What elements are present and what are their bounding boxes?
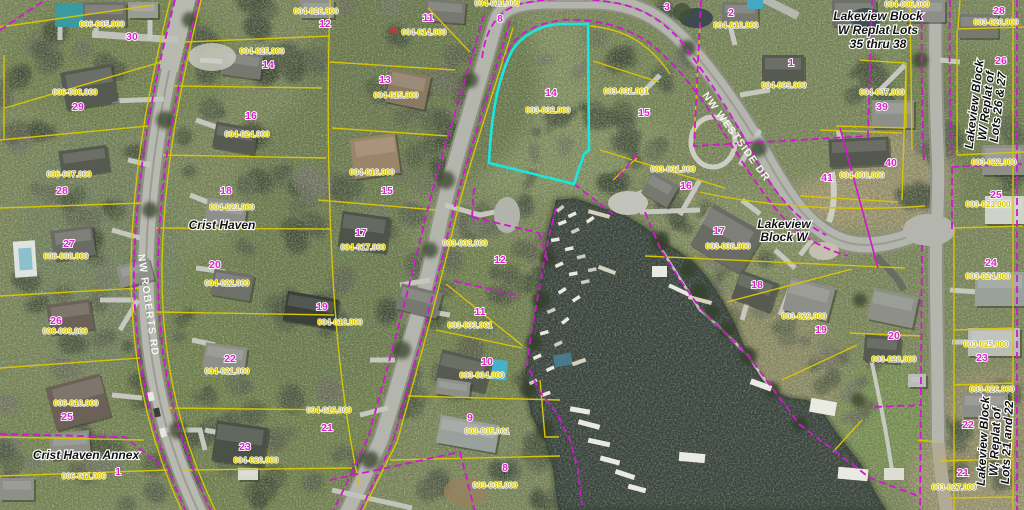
svg-text:003-024.000: 003-024.000 [966,272,1011,281]
svg-text:004-020.000: 004-020.000 [234,456,279,465]
svg-text:003-022.000: 003-022.000 [972,158,1017,167]
svg-text:30: 30 [126,31,138,43]
svg-text:13: 13 [379,74,391,86]
svg-text:41: 41 [821,172,833,184]
svg-text:Block W: Block W [760,230,809,244]
svg-text:12: 12 [319,18,331,30]
svg-text:004-010.000: 004-010.000 [714,21,759,30]
svg-text:24: 24 [985,257,997,269]
svg-text:22: 22 [224,353,236,365]
svg-text:19: 19 [815,324,827,336]
svg-text:006-010.000: 006-010.000 [54,399,99,408]
svg-text:28: 28 [56,185,68,197]
svg-text:16: 16 [245,110,257,122]
svg-text:2: 2 [728,7,734,19]
svg-text:18: 18 [220,185,232,197]
svg-text:004-014.000: 004-014.000 [402,28,447,37]
svg-text:Crist Haven Annex: Crist Haven Annex [33,448,141,462]
svg-text:15: 15 [638,107,650,119]
svg-text:26: 26 [50,315,62,327]
svg-text:21: 21 [321,422,333,434]
svg-text:003-033.000: 003-033.000 [443,239,488,248]
svg-text:10: 10 [481,356,493,368]
svg-text:26: 26 [995,55,1007,67]
svg-text:23: 23 [239,441,251,453]
svg-text:23: 23 [976,352,988,364]
svg-text:3: 3 [664,1,670,13]
svg-text:12: 12 [494,254,506,266]
svg-text:Crist Haven: Crist Haven [189,218,256,232]
svg-text:18: 18 [751,279,763,291]
svg-text:006-006.000: 006-006.000 [53,88,98,97]
svg-text:39: 39 [876,101,888,113]
svg-text:1: 1 [115,466,121,478]
svg-text:1: 1 [788,57,794,69]
svg-text:28: 28 [993,5,1005,17]
svg-text:40: 40 [885,157,897,169]
svg-text:004-026.000: 004-026.000 [294,7,339,16]
svg-text:004-007.000: 004-007.000 [860,88,905,97]
svg-text:11: 11 [422,12,433,24]
svg-text:Lakeview: Lakeview [757,217,811,231]
svg-text:21: 21 [957,467,969,479]
svg-text:35 thru 38: 35 thru 38 [850,37,907,51]
svg-text:004-017.000: 004-017.000 [341,243,386,252]
svg-text:004-025.000: 004-025.000 [240,47,285,56]
svg-text:20: 20 [888,330,900,342]
svg-text:19: 19 [316,301,328,313]
svg-text:003-035.001: 003-035.001 [465,427,510,436]
svg-text:003-033.001: 003-033.001 [448,321,493,330]
svg-text:003-025.000: 003-025.000 [964,340,1009,349]
svg-text:8: 8 [497,13,503,25]
svg-text:003-035.000: 003-035.000 [473,481,518,490]
svg-text:006-005.000: 006-005.000 [80,20,125,29]
svg-text:27: 27 [63,238,75,250]
svg-text:22: 22 [962,419,974,431]
svg-text:004-013.000: 004-013.000 [475,0,520,8]
svg-text:14: 14 [545,87,557,99]
svg-text:003-023.000: 003-023.000 [966,200,1011,209]
svg-text:003-031.001: 003-031.001 [604,87,649,96]
svg-text:004-018.000: 004-018.000 [318,318,363,327]
svg-text:006-009.000: 006-009.000 [43,327,88,336]
svg-text:004-016.000: 004-016.000 [350,168,395,177]
svg-text:9: 9 [467,412,473,424]
svg-text:15: 15 [381,185,393,197]
svg-text:17: 17 [355,227,367,239]
svg-text:17: 17 [713,225,725,237]
svg-text:004-019.000: 004-019.000 [307,406,352,415]
svg-text:004-008.000: 004-008.000 [840,171,885,180]
svg-text:003-026.000: 003-026.000 [970,385,1015,394]
svg-text:25: 25 [61,411,73,423]
svg-text:W Replat Lots: W Replat Lots [838,23,918,37]
svg-text:003-031.000: 003-031.000 [651,165,696,174]
svg-text:004-023.000: 004-023.000 [210,203,255,212]
svg-text:003-020.000: 003-020.000 [974,18,1019,27]
svg-text:Lakeview Block: Lakeview Block [833,9,924,23]
svg-text:004-021.000: 004-021.000 [205,367,250,376]
svg-text:003-030.000: 003-030.000 [706,242,751,251]
svg-text:004-022.000: 004-022.000 [205,279,250,288]
svg-text:004-015.000: 004-015.000 [374,91,419,100]
svg-text:11: 11 [474,306,485,318]
svg-text:003-029.000: 003-029.000 [782,312,827,321]
svg-text:25: 25 [990,189,1002,201]
svg-text:20: 20 [209,259,221,271]
svg-text:16: 16 [680,180,692,192]
svg-text:004-024.000: 004-024.000 [225,130,270,139]
svg-text:006-011.000: 006-011.000 [62,472,107,481]
svg-text:004-009.000: 004-009.000 [762,81,807,90]
svg-text:004-006.000: 004-006.000 [885,0,930,9]
svg-text:003-034.000: 003-034.000 [460,371,505,380]
svg-text:003-032.000: 003-032.000 [526,106,571,115]
svg-text:006-008.000: 006-008.000 [44,252,89,261]
svg-text:003-027.000: 003-027.000 [932,483,977,492]
svg-text:003-028.000: 003-028.000 [872,355,917,364]
svg-text:006-007.000: 006-007.000 [47,170,92,179]
svg-text:14: 14 [262,59,274,71]
svg-text:8: 8 [502,462,508,474]
svg-text:29: 29 [72,101,84,113]
